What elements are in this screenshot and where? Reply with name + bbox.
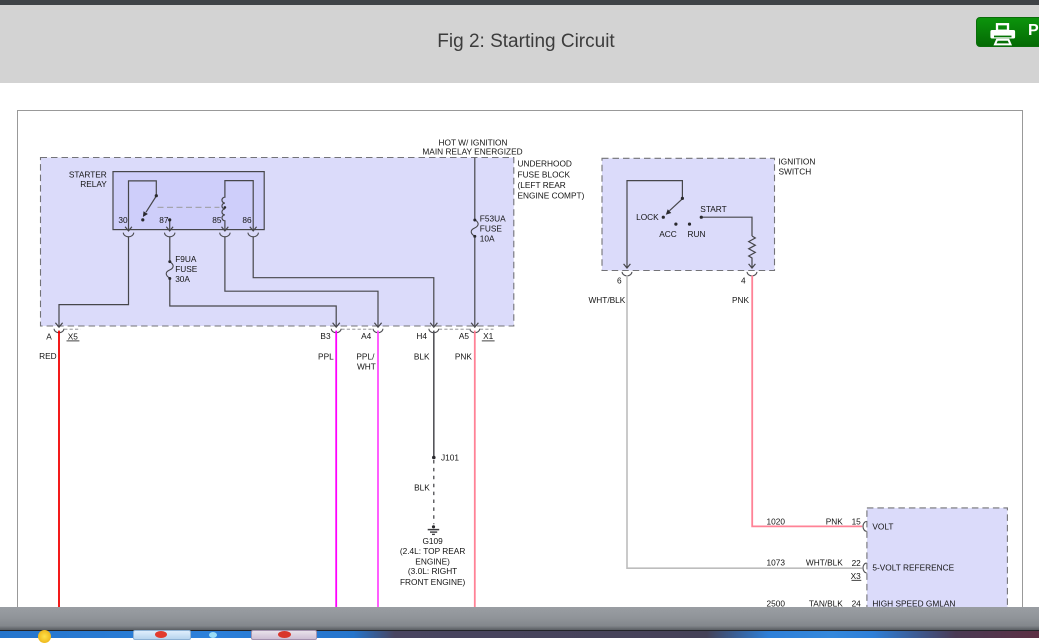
svg-text:30: 30 [118,215,128,225]
svg-text:RELAY: RELAY [80,179,107,189]
svg-text:PNK: PNK [455,352,473,362]
svg-text:WHT/BLK: WHT/BLK [588,295,625,305]
svg-text:WHT/BLK: WHT/BLK [806,558,843,568]
svg-text:STARTER: STARTER [69,170,107,180]
svg-text:LOCK: LOCK [636,212,659,222]
svg-text:SWITCH: SWITCH [779,167,812,177]
svg-text:VOLT: VOLT [872,521,893,531]
svg-text:START: START [700,204,726,214]
svg-text:A5: A5 [459,331,470,341]
svg-text:F9UA: F9UA [175,254,197,264]
svg-text:86: 86 [242,215,252,225]
svg-text:FRONT ENGINE): FRONT ENGINE) [400,577,466,587]
svg-text:(LEFT REAR: (LEFT REAR [518,180,566,190]
svg-text:5-VOLT REFERENCE: 5-VOLT REFERENCE [872,563,954,573]
svg-text:30A: 30A [175,274,190,284]
svg-text:BLK: BLK [414,482,430,492]
svg-text:PPL: PPL [318,352,334,362]
svg-text:MAIN RELAY ENERGIZED: MAIN RELAY ENERGIZED [422,147,522,157]
svg-text:85: 85 [212,215,222,225]
svg-text:X1: X1 [483,331,494,341]
svg-text:ENGINE COMPT): ENGINE COMPT) [518,191,585,201]
svg-text:H4: H4 [416,331,427,341]
svg-text:BLK: BLK [414,352,430,362]
svg-text:FUSE BLOCK: FUSE BLOCK [518,169,571,179]
svg-text:RUN: RUN [688,229,706,239]
svg-text:RED: RED [39,351,57,361]
svg-text:PPL/: PPL/ [356,352,375,362]
svg-text:UNDERHOOD: UNDERHOOD [518,159,572,169]
svg-text:A4: A4 [361,331,372,341]
svg-text:6: 6 [617,275,622,285]
svg-text:WHT: WHT [357,362,376,372]
svg-text:(3.0L: RIGHT: (3.0L: RIGHT [408,566,457,576]
svg-text:X5: X5 [68,332,79,342]
svg-text:ACC: ACC [659,229,677,239]
svg-text:87: 87 [159,215,169,225]
svg-text:FUSE: FUSE [480,223,503,233]
svg-text:PNK: PNK [826,516,844,526]
svg-text:FUSE: FUSE [175,264,198,274]
svg-text:1020: 1020 [767,516,786,526]
svg-text:B3: B3 [320,331,331,341]
svg-text:4: 4 [741,275,746,285]
svg-text:IGNITION: IGNITION [779,156,816,166]
svg-text:22: 22 [852,558,862,568]
svg-text:1073: 1073 [767,558,786,568]
svg-text:(2.4L: TOP REAR: (2.4L: TOP REAR [400,546,465,556]
svg-text:10A: 10A [480,233,495,243]
svg-text:J101: J101 [441,453,459,463]
svg-text:PNK: PNK [732,295,750,305]
svg-text:A: A [46,331,52,341]
svg-text:15: 15 [852,517,862,527]
svg-text:ENGINE): ENGINE) [415,557,450,567]
svg-text:F53UA: F53UA [480,213,506,223]
svg-text:X3: X3 [851,571,862,581]
svg-text:G109: G109 [422,536,443,546]
